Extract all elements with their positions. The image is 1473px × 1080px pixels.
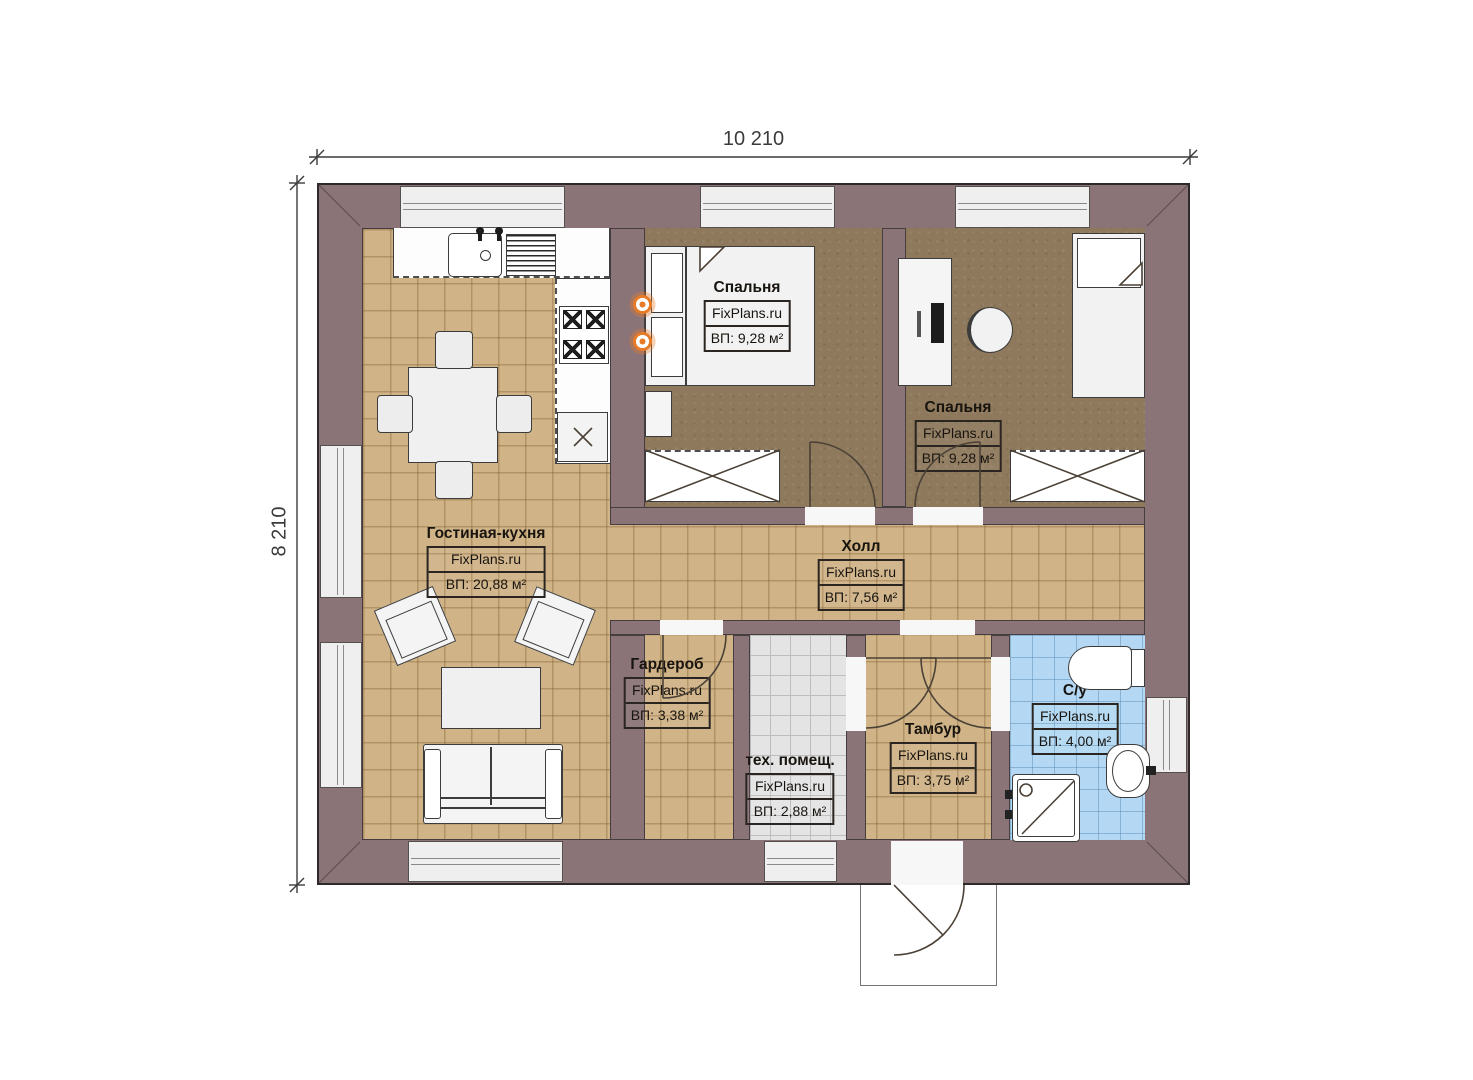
dimension-height: 8 210: [269, 432, 292, 632]
label-bathroom: С/у FixPlans.ru ВП: 4,00 м²: [1032, 682, 1119, 755]
sconce-icon-1: [629, 291, 656, 318]
window-left-lower: [320, 642, 362, 788]
label-hall: Холл FixPlans.ru ВП: 7,56 м²: [818, 538, 905, 611]
washbasin: [1106, 744, 1150, 798]
label-vestibule: Тамбур FixPlans.ru ВП: 3,75 м²: [890, 721, 977, 794]
partition-bedrooms-hall: [610, 507, 1145, 525]
door-opening-bedroom-1: [805, 507, 875, 525]
wardrobe-cabinet-bedroom1: [645, 450, 780, 502]
basin-faucet: [1146, 766, 1156, 775]
room-area: ВП: 9,28 м²: [706, 327, 789, 350]
window-top-bedroom2: [955, 186, 1090, 228]
watermark-text: FixPlans.ru: [626, 679, 709, 704]
entrance-door-opening: [891, 841, 963, 885]
window-left-upper: [320, 445, 362, 598]
nightstand: [645, 391, 672, 437]
door-opening-bathroom: [991, 657, 1010, 731]
wardrobe-cabinet-bedroom2: [1010, 450, 1145, 502]
room-name: Тамбур: [890, 721, 977, 739]
watermark-box: FixPlans.ru ВП: 4,00 м²: [1032, 703, 1119, 755]
watermark-box: FixPlans.ru ВП: 3,38 м²: [624, 677, 711, 729]
room-name: Спальня: [704, 279, 791, 297]
floor-plan-canvas: Спальня FixPlans.ru ВП: 9,28 м² Спальня …: [0, 0, 1473, 1080]
watermark-box: FixPlans.ru ВП: 9,28 м²: [704, 300, 791, 352]
watermark-box: FixPlans.ru ВП: 2,88 м²: [745, 773, 834, 825]
dining-chair-top: [435, 331, 473, 369]
room-name: тех. помещ.: [745, 752, 834, 770]
window-bottom-living: [408, 841, 563, 882]
shower-valve-1: [1005, 790, 1012, 799]
watermark-text: FixPlans.ru: [429, 548, 544, 573]
kitchen-dish-drainer: [506, 234, 556, 276]
entrance-porch: [860, 883, 997, 986]
room-area: ВП: 3,38 м²: [626, 704, 709, 727]
room-name: Холл: [818, 538, 905, 556]
room-area: ВП: 9,28 м²: [917, 447, 1000, 470]
label-bedroom-1: Спальня FixPlans.ru ВП: 9,28 м²: [704, 279, 791, 352]
room-area: ВП: 7,56 м²: [820, 586, 903, 609]
watermark-text: FixPlans.ru: [747, 775, 832, 800]
label-bedroom-2: Спальня FixPlans.ru ВП: 9,28 м²: [915, 399, 1002, 472]
watermark-box: FixPlans.ru ВП: 3,75 м²: [890, 742, 977, 794]
opening-hall-vestibule: [900, 620, 975, 635]
watermark-box: FixPlans.ru ВП: 9,28 м²: [915, 420, 1002, 472]
room-area: ВП: 20,88 м²: [429, 573, 544, 596]
shower-valve-2: [1005, 810, 1012, 819]
dimension-width: 10 210: [317, 128, 1190, 151]
keyboard: [917, 311, 921, 337]
watermark-box: FixPlans.ru ВП: 20,88 м²: [427, 546, 546, 598]
coffee-table: [441, 667, 541, 729]
label-tech-room: тех. помещ. FixPlans.ru ВП: 2,88 м²: [745, 752, 834, 825]
watermark-text: FixPlans.ru: [706, 302, 789, 327]
stove: [559, 306, 609, 364]
door-opening-wardrobe: [660, 620, 723, 635]
label-wardrobe: Гардероб FixPlans.ru ВП: 3,38 м²: [624, 656, 711, 729]
room-name: Гардероб: [624, 656, 711, 674]
computer-monitor: [931, 303, 944, 343]
sconce-icon-2: [629, 328, 656, 355]
kitchen-sink: [448, 233, 502, 277]
watermark-box: FixPlans.ru ВП: 7,56 м²: [818, 559, 905, 611]
dining-table: [408, 367, 498, 463]
room-name: Спальня: [915, 399, 1002, 417]
window-right-bathroom: [1146, 697, 1187, 773]
room-name: Гостиная-кухня: [427, 525, 546, 543]
door-opening-bedroom-2: [913, 507, 983, 525]
window-top-bedroom1: [700, 186, 835, 228]
room-area: ВП: 4,00 м²: [1034, 730, 1117, 753]
watermark-text: FixPlans.ru: [820, 561, 903, 586]
toilet-bowl: [1068, 646, 1132, 690]
office-chair: [967, 307, 1013, 353]
room-area: ВП: 3,75 м²: [892, 769, 975, 792]
kitchen-appliance: [557, 412, 608, 462]
window-bottom-tech: [764, 841, 837, 882]
label-living-kitchen: Гостиная-кухня FixPlans.ru ВП: 20,88 м²: [427, 525, 546, 598]
watermark-text: FixPlans.ru: [917, 422, 1000, 447]
watermark-text: FixPlans.ru: [1034, 705, 1117, 730]
dining-chair-bottom: [435, 461, 473, 499]
partition-kitchen-bedroom1: [610, 228, 645, 525]
room-area: ВП: 2,88 м²: [747, 800, 832, 823]
shower-tray: [1012, 774, 1080, 842]
desk: [898, 258, 952, 386]
sofa: [423, 744, 563, 824]
single-bed: [1072, 233, 1145, 398]
window-top-kitchen: [400, 186, 565, 228]
door-opening-tech: [846, 657, 866, 731]
watermark-text: FixPlans.ru: [892, 744, 975, 769]
dining-chair-right: [496, 395, 532, 433]
dining-chair-left: [377, 395, 413, 433]
